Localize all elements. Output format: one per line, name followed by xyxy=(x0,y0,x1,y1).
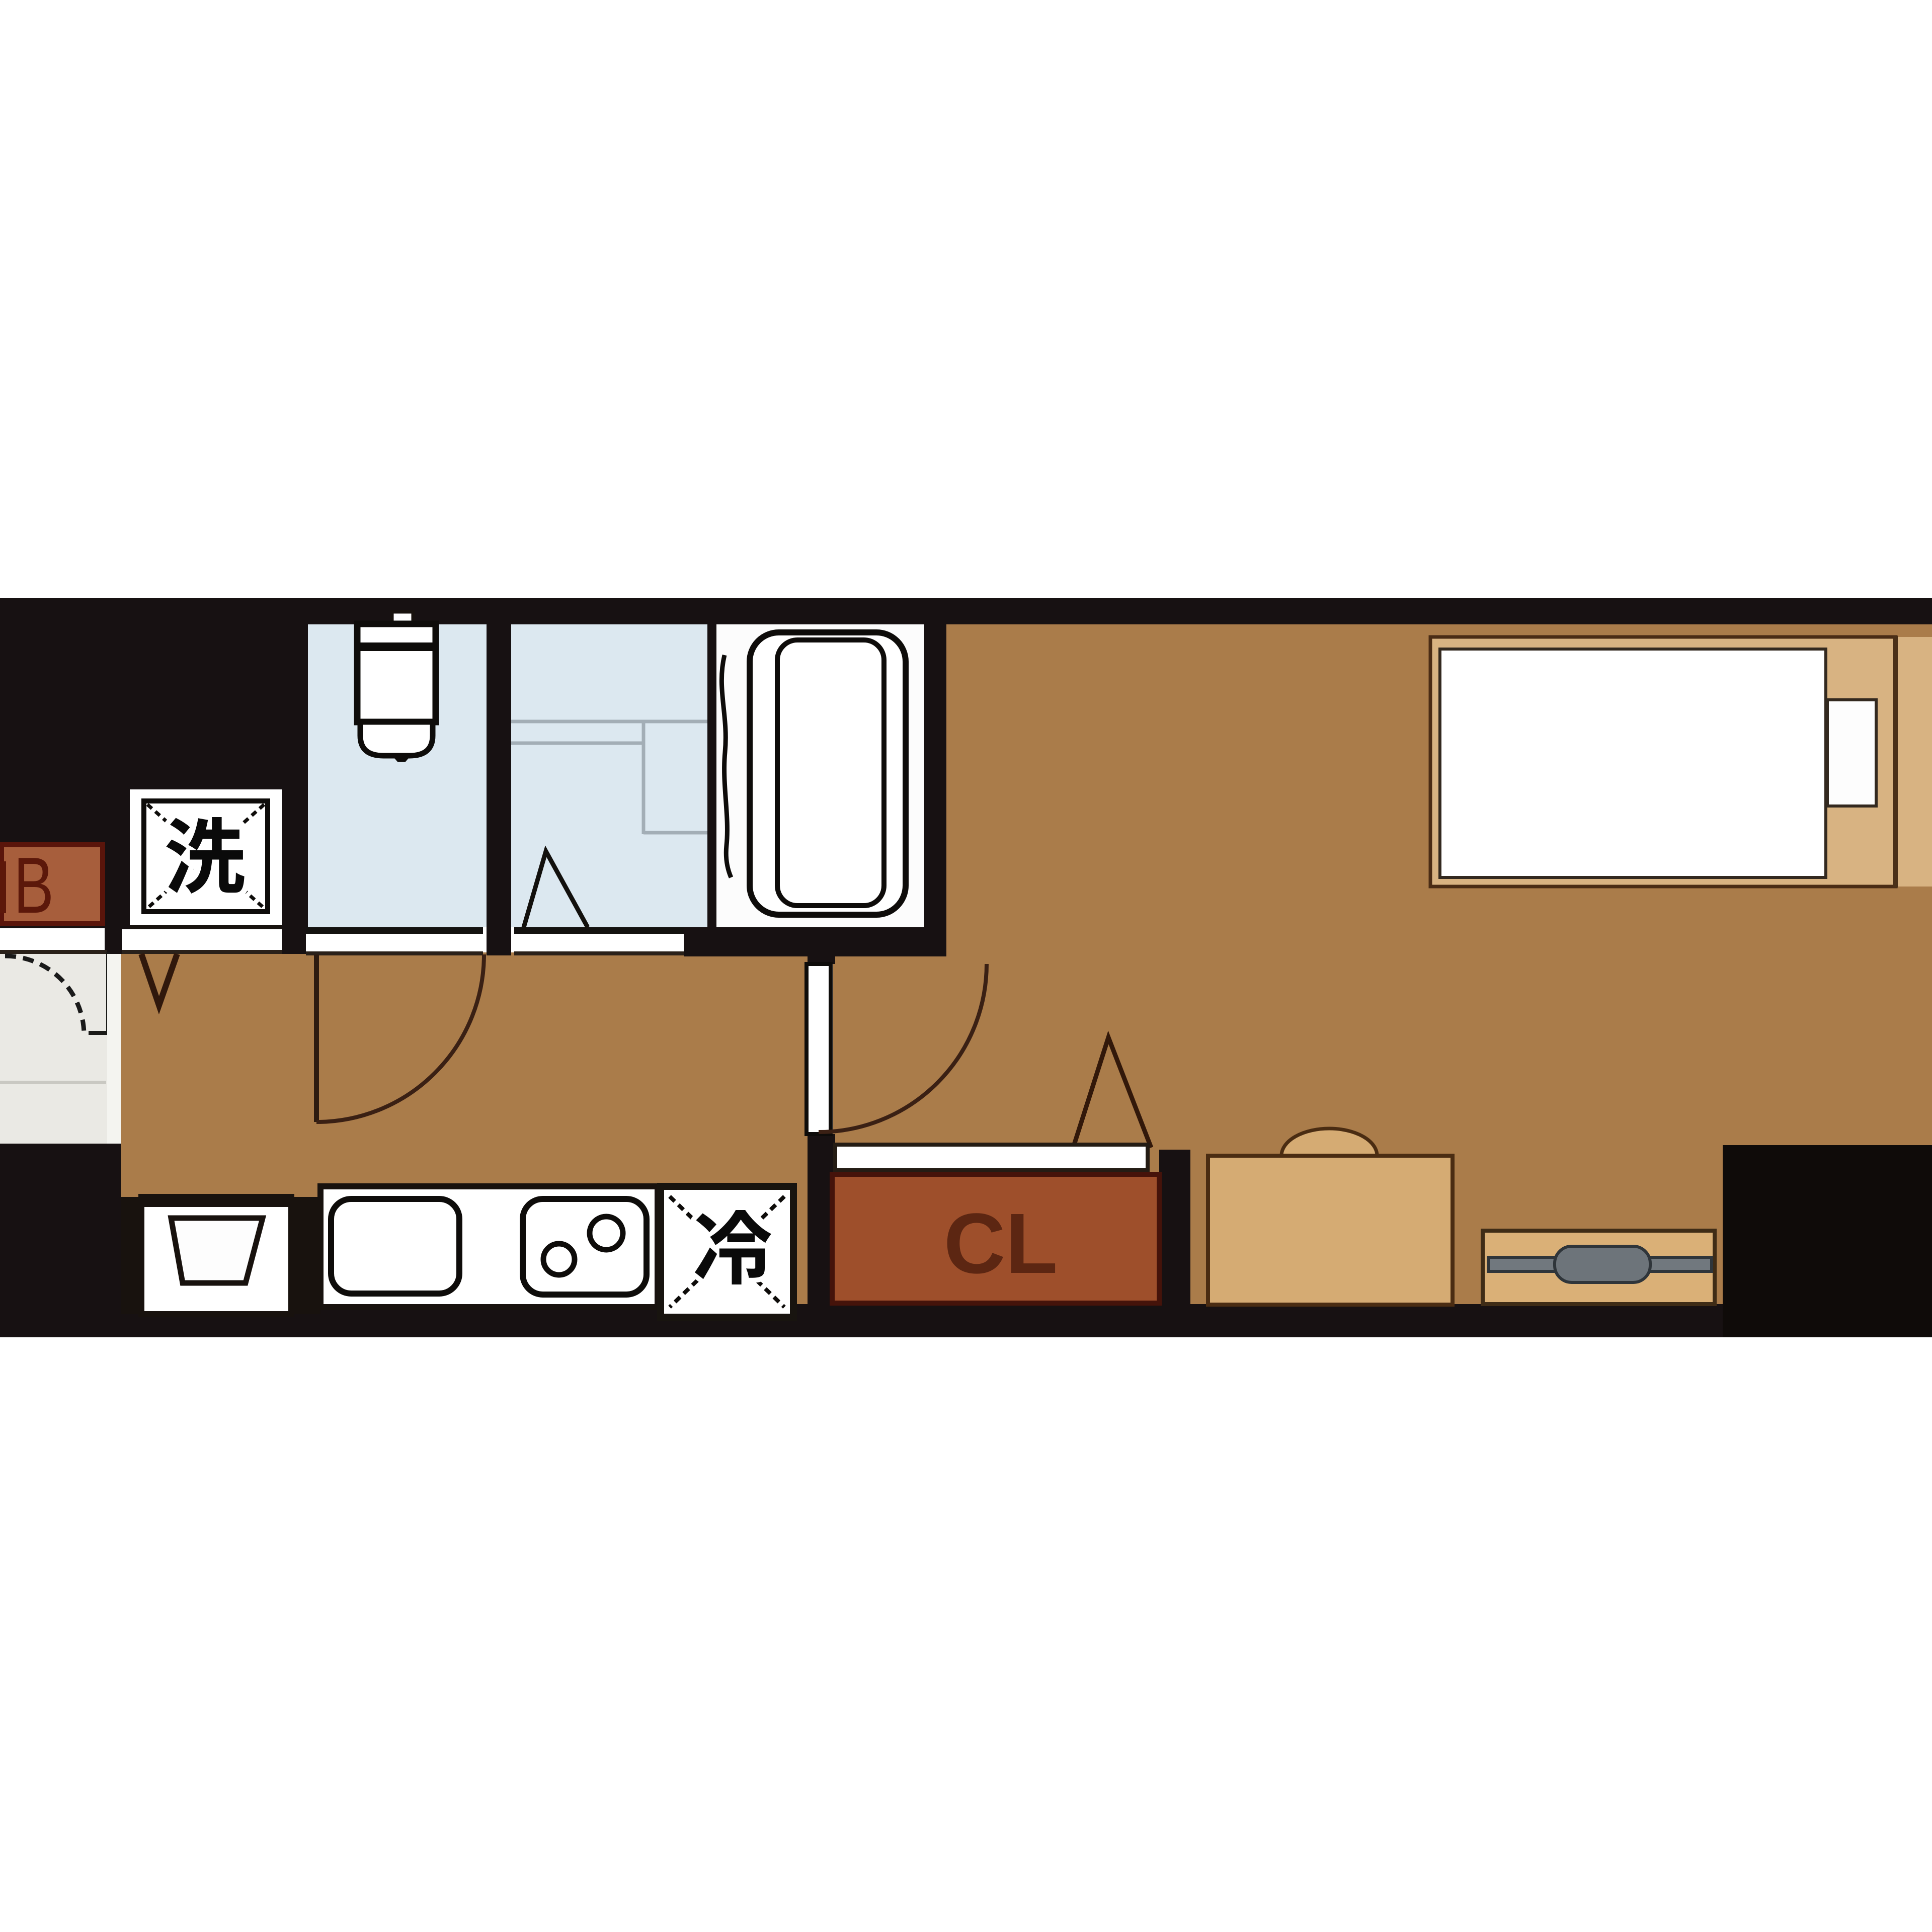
svg-text:B: B xyxy=(14,841,54,930)
svg-text:CL: CL xyxy=(944,1196,1058,1292)
